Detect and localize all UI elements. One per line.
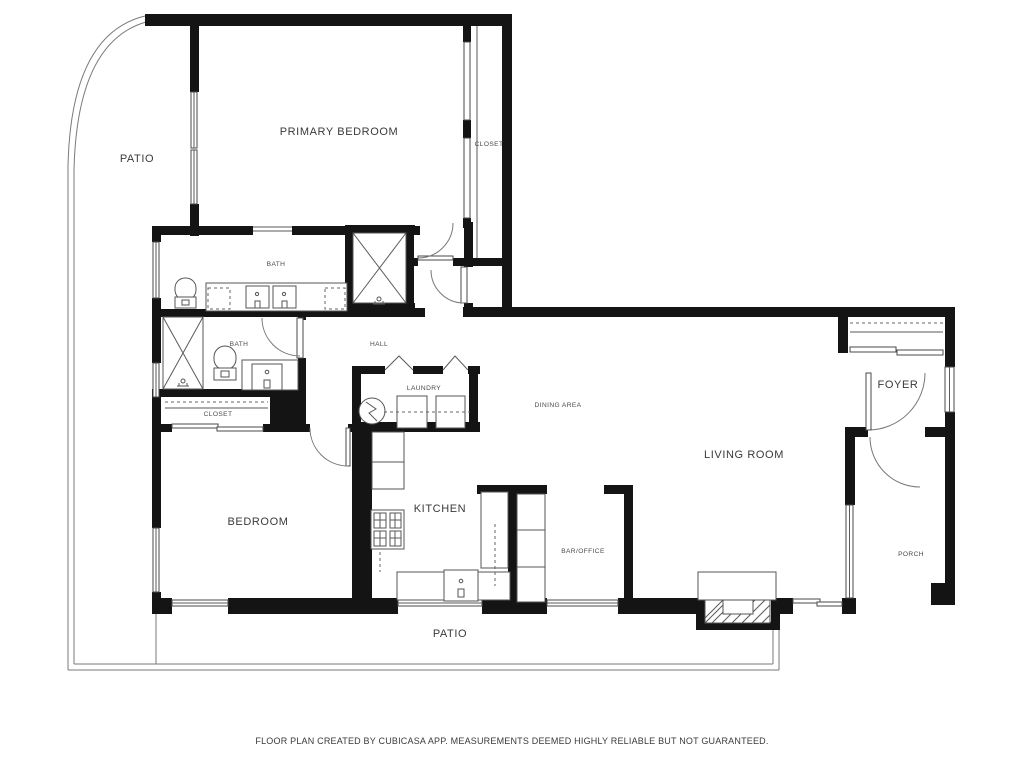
room-label-hall: HALL — [370, 341, 388, 348]
room-label-primary-closet: CLOSET — [475, 141, 504, 148]
windows — [153, 92, 954, 606]
window — [846, 505, 853, 598]
window — [153, 528, 159, 592]
room-label-living: LIVING ROOM — [704, 449, 784, 461]
burner — [374, 531, 386, 546]
burner — [390, 513, 401, 528]
hall-closet-shelf — [165, 402, 268, 408]
room-label-dining: DINING AREA — [535, 402, 582, 409]
room-label-bath-primary: BATH — [267, 261, 286, 268]
window — [191, 150, 197, 204]
room-label-primary-bedroom: PRIMARY BEDROOM — [280, 126, 399, 138]
room-label-patio-top: PATIO — [120, 153, 154, 165]
window — [547, 600, 618, 606]
foyer-closet — [850, 323, 943, 355]
kitchen-sink — [444, 570, 478, 601]
window — [172, 600, 228, 606]
wall-opening — [253, 227, 292, 231]
counter — [372, 462, 404, 489]
water-heater-icon — [359, 398, 385, 424]
room-label-bath-hall: BATH — [230, 341, 249, 348]
room-label-laundry: LAUNDRY — [407, 385, 441, 392]
door-nook-to-closet — [431, 267, 467, 303]
porch-pillar — [931, 583, 955, 605]
shower — [163, 317, 203, 389]
room-label-patio-bottom: PATIO — [433, 628, 467, 640]
double-vanity — [206, 283, 347, 311]
stove — [371, 510, 404, 549]
burner — [374, 513, 386, 528]
vanity — [242, 360, 298, 390]
door-bedroom — [310, 428, 350, 466]
room-label-kitchen: KITCHEN — [414, 503, 466, 515]
shower — [353, 233, 406, 304]
window — [191, 92, 197, 148]
toilet — [175, 278, 196, 308]
toilet — [214, 346, 236, 380]
interior-walls — [152, 20, 955, 630]
footer-disclaimer: FLOOR PLAN CREATED BY CUBICASA APP. MEAS… — [255, 736, 768, 746]
window — [945, 367, 954, 412]
room-label-bar-office: BAR/OFFICE — [561, 548, 605, 555]
room-label-bedroom: BEDROOM — [227, 516, 288, 528]
door-bath2 — [262, 318, 303, 358]
sink — [252, 364, 282, 390]
window — [153, 363, 159, 397]
floor-plan-drawing: PATIO PRIMARY BEDROOM CLOSET BATH BATH H… — [0, 0, 1024, 768]
sink — [246, 286, 269, 308]
bedroom-closet-slider — [172, 424, 263, 431]
floor-plan-page: PATIO PRIMARY BEDROOM CLOSET BATH BATH H… — [0, 0, 1024, 768]
sliding-door — [793, 599, 842, 606]
door-primary-to-nook — [418, 223, 453, 260]
room-label-porch: PORCH — [898, 551, 924, 558]
refrigerator — [372, 432, 404, 462]
window — [153, 242, 159, 298]
room-label-hall-closet: CLOSET — [204, 411, 233, 418]
room-label-foyer: FOYER — [878, 379, 919, 391]
burner — [390, 531, 401, 546]
sink — [273, 286, 296, 308]
fireplace — [698, 572, 776, 623]
shelves — [517, 494, 545, 602]
